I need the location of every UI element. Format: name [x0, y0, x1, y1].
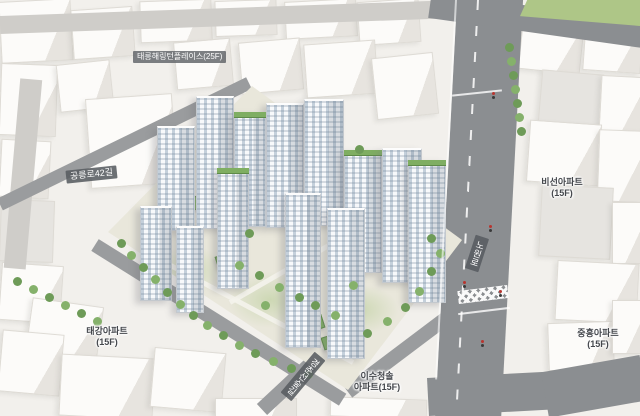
green-roof [408, 160, 446, 166]
complex-name-label: 태릉해링턴플레이스(25F) [133, 51, 226, 63]
apartment-floors: (15F) [557, 339, 639, 350]
green-roof [344, 150, 382, 156]
traffic-light-icon [489, 225, 492, 228]
apartment-name: 비선아파트 [522, 177, 602, 188]
apartment-floors: 아파트(15F) [332, 382, 422, 393]
apartment-tower [140, 206, 172, 301]
apartment-name: 태강아파트 [62, 326, 152, 337]
city-building-block [371, 52, 439, 120]
city-building-block [173, 38, 234, 91]
apartment-name: 중흥아파트 [557, 328, 639, 339]
apartment-floors: (15F) [522, 188, 602, 199]
map-viewport[interactable]: 태릉해링턴플레이스(25F) 공릉로42길 노원로 경춘선숲길 태강아파트 (1… [0, 0, 640, 416]
apartment-tower [327, 208, 365, 359]
green-roof [234, 112, 266, 118]
road-nowonro [435, 0, 523, 416]
city-building-block [599, 75, 640, 134]
apartment-tower [217, 168, 249, 289]
apartment-label-taegang: 태강아파트 (15F) [62, 326, 152, 348]
road-intersection-bottom [427, 371, 554, 415]
city-building-block [330, 396, 428, 416]
city-building-block [538, 69, 604, 126]
apartment-tower [285, 193, 321, 348]
green-roof [217, 168, 249, 174]
apartment-label-jungheung: 중흥아파트 (15F) [557, 328, 639, 350]
apartment-name: 이수청솔 [332, 371, 422, 382]
traffic-light-icon [499, 290, 502, 293]
city-building-block [303, 40, 379, 99]
city-building-block [0, 329, 65, 396]
apartment-label-biseon: 비선아파트 (15F) [522, 177, 602, 199]
city-building-block [58, 354, 155, 416]
apartment-tower [176, 226, 204, 313]
traffic-light-icon [481, 340, 484, 343]
traffic-light-icon [463, 281, 466, 284]
city-building-block [215, 398, 297, 416]
apartment-label-isucheongsol: 이수청솔 아파트(15F) [332, 371, 422, 393]
city-building-block [612, 202, 640, 264]
trees-layer [0, 0, 7, 7]
apartment-floors: (15F) [62, 337, 152, 348]
traffic-light-icon [492, 92, 495, 95]
